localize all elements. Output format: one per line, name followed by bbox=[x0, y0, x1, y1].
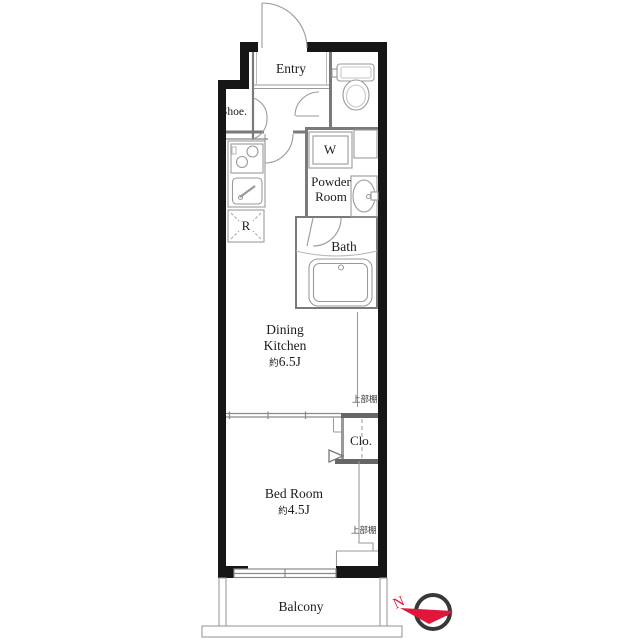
washer-label: W bbox=[316, 142, 344, 157]
bedroom-label: Bed Room 約4.5J bbox=[252, 486, 336, 518]
compass bbox=[400, 595, 453, 629]
entry-door bbox=[262, 3, 307, 48]
floorplan-drawing bbox=[0, 0, 640, 639]
storage-box bbox=[354, 130, 377, 158]
sliding-window bbox=[234, 569, 336, 578]
bathtub bbox=[296, 251, 377, 306]
refrigerator-label: R bbox=[234, 218, 258, 233]
powder-room-label: Powder Room bbox=[303, 174, 359, 205]
doors bbox=[253, 3, 341, 246]
sliding-partition bbox=[226, 412, 341, 420]
upper-shelf-label-2: 上部棚 bbox=[351, 525, 378, 535]
toilet-fixture bbox=[332, 64, 374, 110]
floorplan-canvas: Entry Shoe. W Powder Room Bath R Dining … bbox=[0, 0, 640, 639]
sink bbox=[233, 178, 263, 204]
dining-kitchen-label: Dining Kitchen 約6.5J bbox=[243, 322, 327, 370]
toilet-door bbox=[295, 92, 319, 116]
entry-label: Entry bbox=[250, 61, 332, 77]
building-slab bbox=[202, 626, 402, 637]
balcony-label: Balcony bbox=[259, 599, 343, 615]
bath-label: Bath bbox=[318, 239, 370, 255]
closet-label: Clo. bbox=[343, 433, 379, 448]
stove bbox=[231, 144, 263, 173]
balcony-rail-right bbox=[380, 578, 387, 627]
kitchen-door bbox=[265, 134, 293, 163]
shoe-label: Shoe. bbox=[221, 106, 255, 120]
balcony-rail-left bbox=[219, 578, 226, 627]
upper-shelf-label-1: 上部棚 bbox=[352, 394, 379, 404]
